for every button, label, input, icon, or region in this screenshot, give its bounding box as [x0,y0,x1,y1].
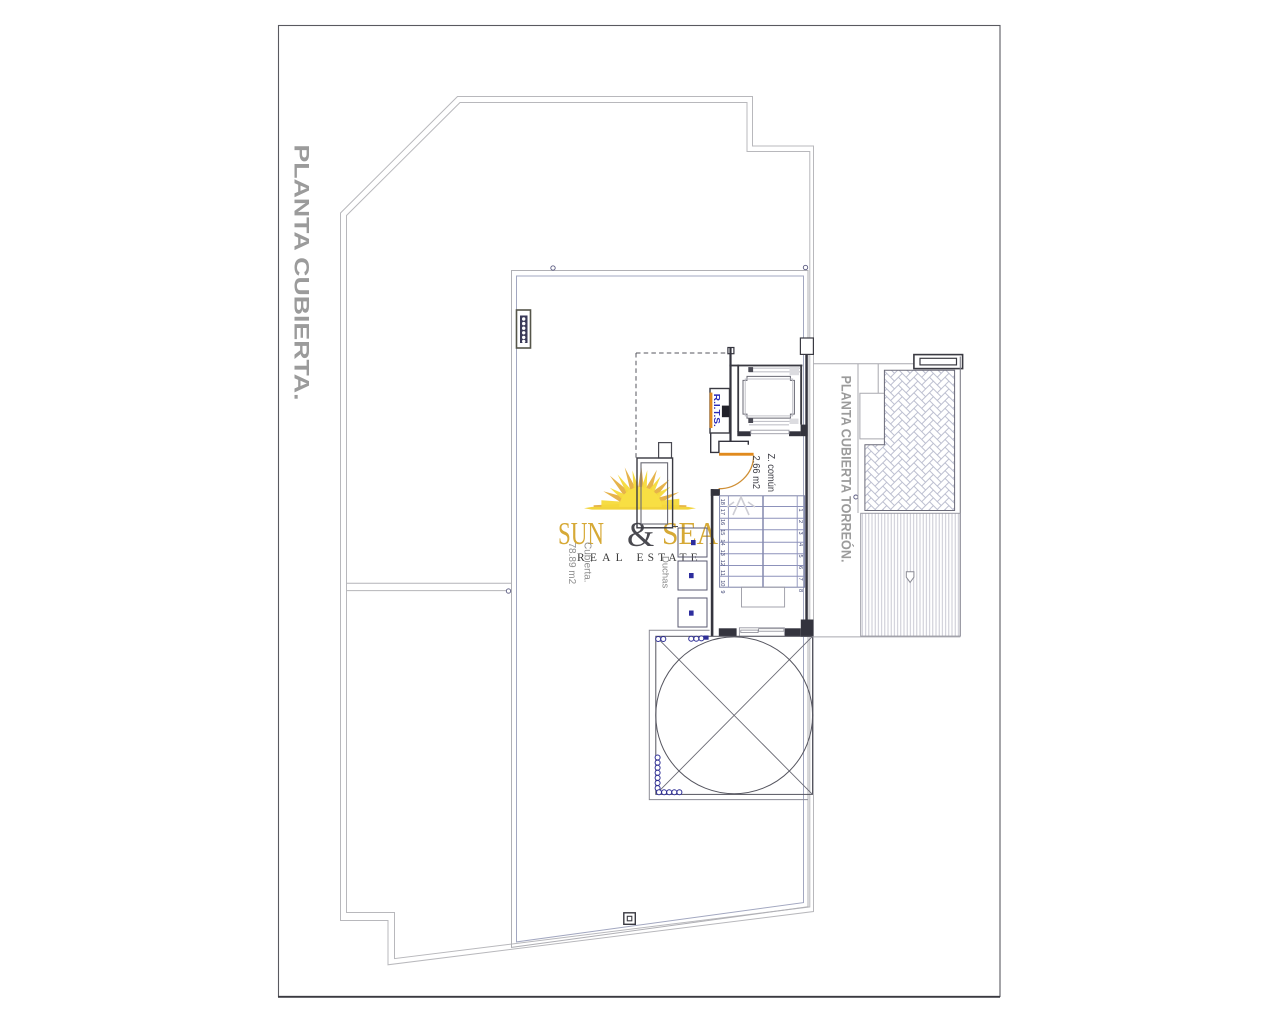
svg-text:4: 4 [797,543,803,546]
svg-text:SUN: SUN [558,516,604,551]
svg-text:15: 15 [719,529,725,535]
svg-text:13: 13 [719,550,725,556]
svg-text:SEA: SEA [662,516,718,551]
svg-text:18: 18 [719,499,725,505]
svg-text:Cubierta.: Cubierta. [582,542,593,583]
svg-text:14: 14 [719,539,725,545]
svg-text:PLANTA CUBIERTA TORREÓN.: PLANTA CUBIERTA TORREÓN. [839,376,854,563]
svg-text:8: 8 [797,589,803,592]
svg-text:78.89 m2: 78.89 m2 [566,543,577,585]
svg-text:9: 9 [719,590,725,593]
svg-text:12: 12 [719,560,725,566]
svg-text:Z. común: Z. común [765,454,776,493]
svg-text:2: 2 [797,520,803,523]
svg-text:R.I.T.S.: R.I.T.S. [712,394,721,427]
svg-text:7: 7 [797,578,803,581]
svg-text:10: 10 [719,580,725,586]
svg-text:6: 6 [797,566,803,569]
svg-text:17: 17 [719,509,725,515]
svg-text:11: 11 [719,570,725,576]
svg-text:1: 1 [797,509,803,512]
svg-text:5: 5 [797,555,803,558]
svg-text:3: 3 [797,532,803,535]
svg-text:16: 16 [719,519,725,525]
svg-text:Duchas: Duchas [660,556,671,588]
svg-text:PLANTA CUBIERTA.: PLANTA CUBIERTA. [290,145,314,401]
svg-text:2.66 m2: 2.66 m2 [750,456,761,490]
